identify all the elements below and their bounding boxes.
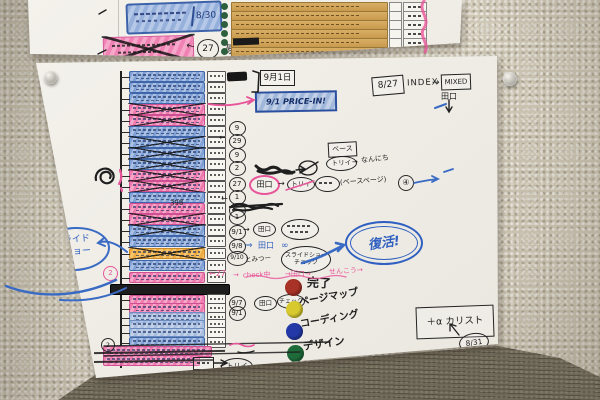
arrow-to-price-in (208, 97, 254, 105)
scribbled-out-word (230, 204, 282, 211)
pink-strike (286, 181, 314, 190)
push-pin (503, 72, 517, 86)
small-arrow (214, 360, 227, 366)
spiral-doodle (96, 169, 114, 184)
blue-swoosh (6, 280, 116, 294)
pink-wavy-line (422, 1, 426, 52)
freehand-ink-overlay (0, 0, 600, 400)
scribbled-out-word (256, 166, 294, 173)
strike-lines-bottom (104, 342, 330, 356)
arrow-after-circle4 (414, 169, 453, 183)
pink-squiggle-over-text (246, 276, 346, 279)
black-pen-strokes (96, 10, 459, 366)
arrow-into-bubble (98, 238, 127, 252)
arrow-to-plus-alpha (450, 324, 459, 335)
blue-dash (435, 104, 446, 108)
pink-exclamation (119, 170, 122, 191)
black-marker-blob (227, 71, 247, 81)
down-arrow (446, 100, 452, 112)
margin-ticks (98, 10, 106, 54)
photo-of-pinned-schedule: 8/30 ← 27 原稿 9月1日 9/1 PRICE-IN! 8/27 IND (0, 0, 600, 400)
blue-pen-strokes (6, 104, 453, 300)
bracket-rows (252, 71, 259, 92)
arrow-to-fukkatsu (302, 243, 344, 263)
push-pin (44, 71, 57, 84)
